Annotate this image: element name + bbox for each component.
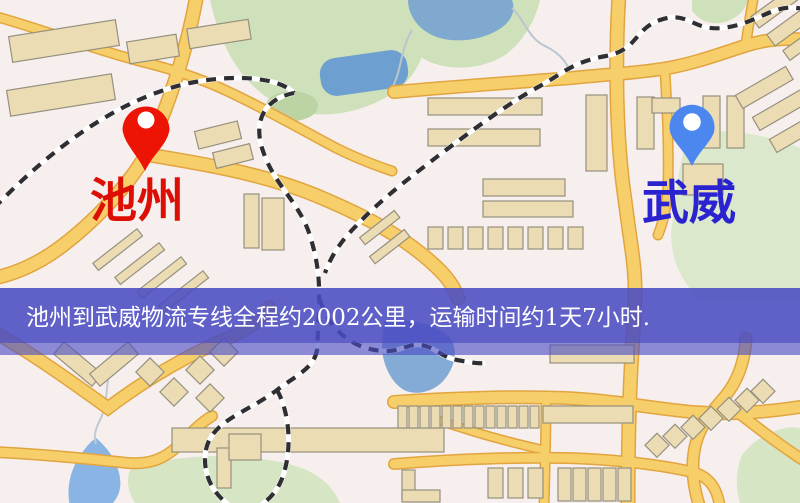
building xyxy=(519,406,528,428)
building xyxy=(573,468,586,501)
building xyxy=(528,227,543,249)
building xyxy=(7,74,116,116)
building xyxy=(229,434,261,460)
building xyxy=(530,406,539,428)
logistics-map: 池州到武威物流专线全程约2002公里，运输时间约1天7小时. 池州 武威 xyxy=(0,0,800,503)
building xyxy=(464,406,473,428)
building xyxy=(508,406,517,428)
building xyxy=(652,98,680,113)
building xyxy=(431,406,440,428)
building xyxy=(262,198,284,250)
building xyxy=(428,129,540,146)
destination-label: 武威 xyxy=(642,176,736,231)
building xyxy=(508,227,523,249)
building xyxy=(196,384,224,412)
building xyxy=(528,468,543,498)
route-info-text: 池州到武威物流专线全程约2002公里，运输时间约1天7小时. xyxy=(26,305,650,331)
building xyxy=(428,227,443,249)
building xyxy=(568,227,583,249)
building xyxy=(488,227,503,249)
building xyxy=(194,121,241,149)
building xyxy=(398,406,407,428)
destination-pin-hole xyxy=(683,113,701,131)
building xyxy=(508,468,523,498)
building xyxy=(442,406,451,428)
building xyxy=(402,490,440,502)
building xyxy=(468,227,483,249)
origin-label: 池州 xyxy=(90,174,184,229)
park-area xyxy=(692,0,748,23)
building xyxy=(428,98,542,115)
origin-pin-hole xyxy=(138,112,155,129)
map-canvas: 池州到武威物流专线全程约2002公里，运输时间约1天7小时. 池州 武威 xyxy=(0,0,800,503)
building xyxy=(420,406,429,428)
building xyxy=(586,95,607,171)
building xyxy=(558,468,571,501)
building xyxy=(488,468,503,498)
route-banner: 池州到武威物流专线全程约2002公里，运输时间约1天7小时. xyxy=(0,288,800,355)
building xyxy=(618,468,631,501)
building xyxy=(543,406,633,423)
building xyxy=(483,179,565,196)
building xyxy=(588,468,601,501)
banner-background-fade xyxy=(0,343,800,355)
building xyxy=(213,144,254,169)
building xyxy=(497,406,506,428)
building xyxy=(448,227,463,249)
pond xyxy=(68,438,120,503)
road xyxy=(394,458,720,503)
building xyxy=(548,227,563,249)
building xyxy=(475,406,484,428)
building xyxy=(603,468,616,501)
building xyxy=(483,201,573,217)
building xyxy=(409,406,418,428)
building xyxy=(453,406,462,428)
building xyxy=(127,34,180,64)
building xyxy=(486,406,495,428)
building xyxy=(160,378,188,406)
building xyxy=(244,194,259,248)
